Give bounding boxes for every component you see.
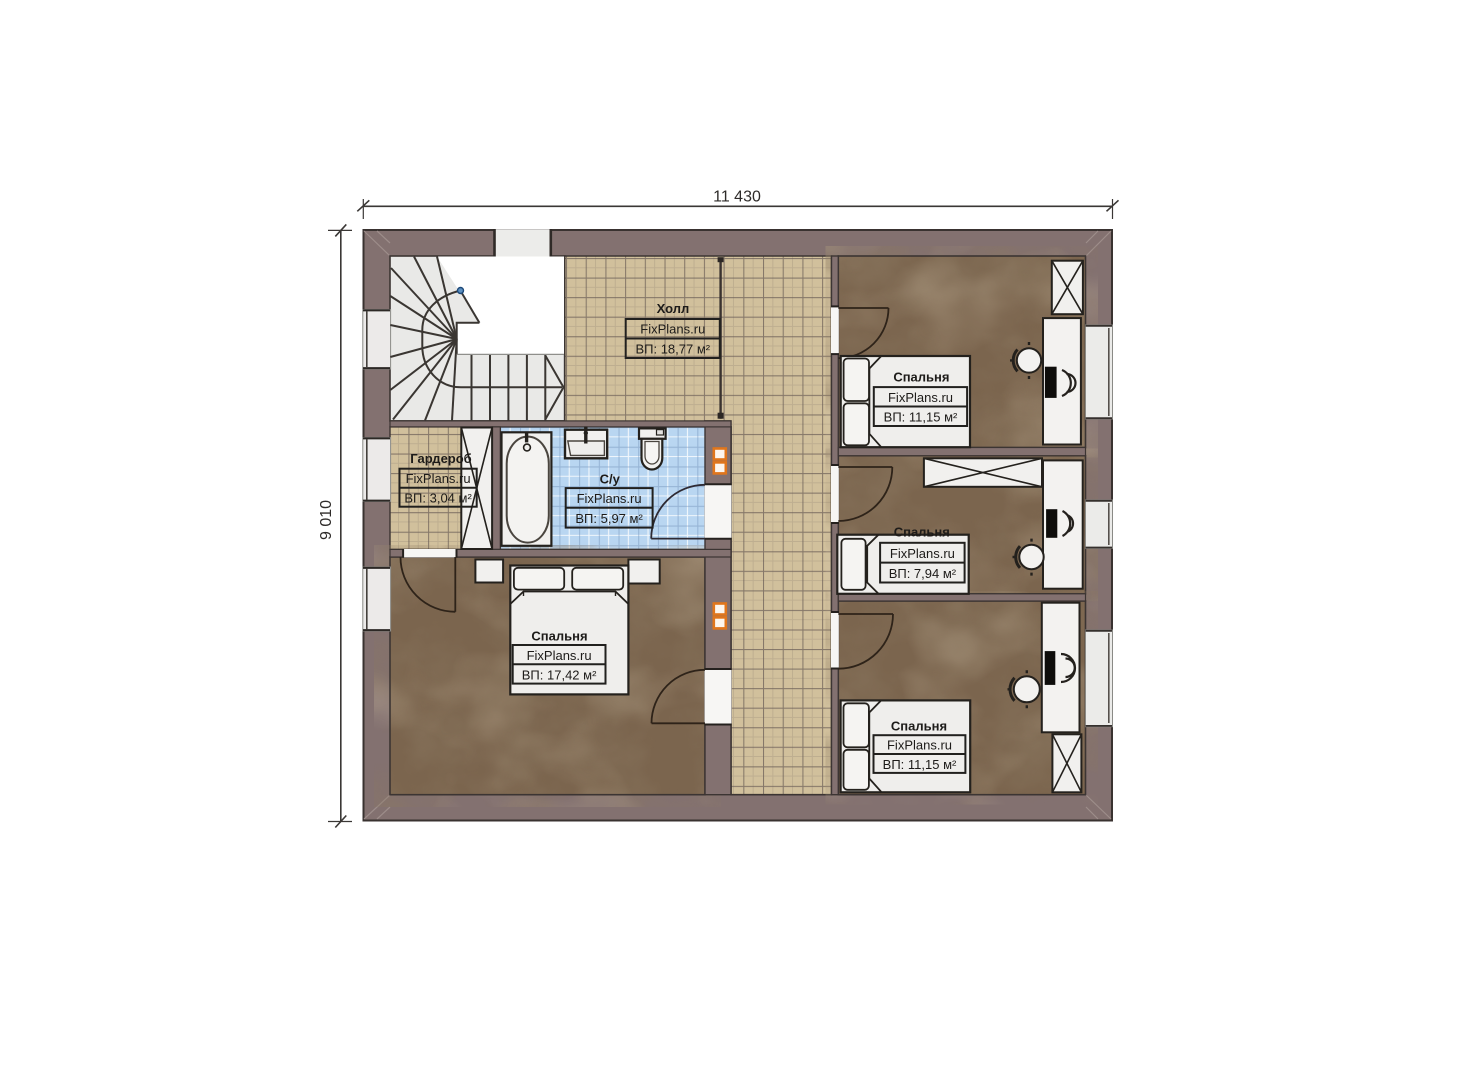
svg-text:Спальня: Спальня bbox=[891, 719, 947, 734]
svg-text:FixPlans.ru: FixPlans.ru bbox=[406, 471, 471, 486]
svg-text:Холл: Холл bbox=[657, 301, 690, 316]
svg-text:ВП: 11,15 м²: ВП: 11,15 м² bbox=[884, 410, 958, 425]
svg-text:FixPlans.ru: FixPlans.ru bbox=[888, 390, 953, 405]
svg-text:FixPlans.ru: FixPlans.ru bbox=[527, 648, 592, 663]
svg-text:Спальня: Спальня bbox=[893, 369, 949, 384]
svg-text:FixPlans.ru: FixPlans.ru bbox=[890, 546, 955, 561]
svg-text:Гардероб: Гардероб bbox=[410, 451, 471, 466]
svg-text:ВП: 18,77 м²: ВП: 18,77 м² bbox=[635, 342, 710, 357]
svg-text:С/у: С/у bbox=[600, 472, 621, 487]
svg-text:ВП: 5,97 м²: ВП: 5,97 м² bbox=[575, 511, 643, 526]
svg-text:ВП: 7,94 м²: ВП: 7,94 м² bbox=[889, 566, 957, 581]
svg-text:ВП: 11,15 м²: ВП: 11,15 м² bbox=[883, 757, 957, 772]
svg-text:ВП: 3,04 м²: ВП: 3,04 м² bbox=[404, 491, 472, 506]
svg-text:ВП: 17,42 м²: ВП: 17,42 м² bbox=[522, 667, 597, 682]
svg-text:FixPlans.ru: FixPlans.ru bbox=[577, 491, 642, 506]
svg-text:FixPlans.ru: FixPlans.ru bbox=[887, 738, 952, 753]
svg-text:9 010: 9 010 bbox=[318, 500, 335, 540]
svg-text:FixPlans.ru: FixPlans.ru bbox=[640, 322, 705, 337]
svg-text:Спальня: Спальня bbox=[531, 629, 587, 644]
svg-text:11 430: 11 430 bbox=[713, 189, 761, 206]
svg-text:Спальня: Спальня bbox=[894, 525, 950, 540]
